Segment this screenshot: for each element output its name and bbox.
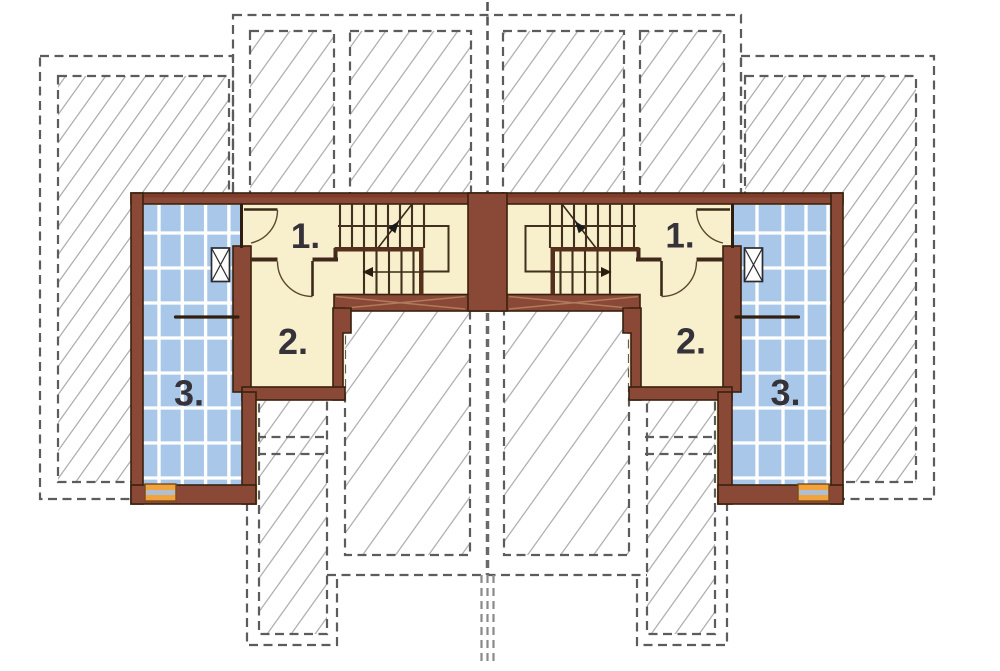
svg-text:3.: 3. xyxy=(770,372,800,413)
svg-text:2.: 2. xyxy=(676,321,706,362)
svg-text:1.: 1. xyxy=(291,217,320,256)
svg-text:1.: 1. xyxy=(665,217,694,256)
svg-text:3.: 3. xyxy=(174,373,204,414)
svg-text:2.: 2. xyxy=(278,321,308,362)
